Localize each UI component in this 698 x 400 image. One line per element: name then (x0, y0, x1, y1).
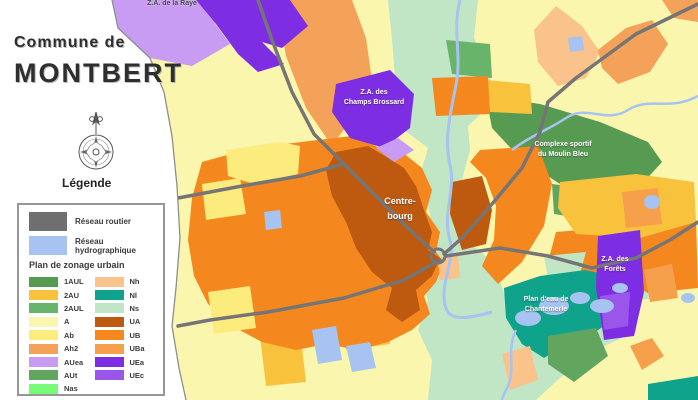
hydro-network-swatch (29, 236, 67, 255)
zone-swatch (29, 290, 58, 300)
pond (590, 299, 614, 313)
zone-swatch (29, 317, 58, 327)
zone-code: UA (130, 317, 141, 326)
legend-item-2au: 2AU (29, 288, 95, 301)
zone-code: AUea (64, 358, 83, 367)
zone-swatch (29, 357, 58, 367)
pond-north (568, 36, 584, 52)
zone-code: UEc (130, 371, 145, 380)
zone-legend-column-right: Nh Nl Ns UA UB (95, 275, 159, 396)
pond (644, 195, 660, 209)
zoning-map-page: Z.A. de la Raye Z.A. des Champs Brossard… (0, 0, 698, 400)
legend-item-roads: Réseau routier (29, 212, 158, 231)
road-network-swatch (29, 212, 67, 231)
zone-ub-north (432, 76, 490, 116)
legend-item-hydro: Réseau hydrographique (29, 236, 158, 255)
zone-swatch (95, 344, 124, 354)
zone-swatch (95, 330, 124, 340)
legend-item-ub: UB (95, 329, 159, 342)
zone-code: UB (130, 331, 141, 340)
zone-code: Ab (64, 331, 74, 340)
pond-town (264, 210, 282, 230)
legend-item-nl: Nl (95, 288, 159, 301)
pond (570, 292, 590, 304)
map-title-line2: MONTBERT (14, 58, 183, 89)
legend-item-ah2: Ah2 (29, 342, 95, 355)
zone-code: Nh (130, 277, 140, 286)
pond (539, 297, 569, 315)
legend-item-ab: Ab (29, 329, 95, 342)
zone-code: A (64, 317, 69, 326)
zone-2aul-north (446, 40, 492, 78)
zone-code: 2AUL (64, 304, 84, 313)
zone-swatch (95, 290, 124, 300)
compass-rose-icon (68, 110, 124, 178)
zone-code: Ah2 (64, 344, 78, 353)
zone-code: 1AUL (64, 277, 84, 286)
pond (612, 283, 628, 293)
legend-item-a: A (29, 315, 95, 328)
legend-item-aut: AUt (29, 369, 95, 382)
legend-item-ua: UA (95, 315, 159, 328)
zone-swatch (95, 277, 124, 287)
zone-code: UBa (130, 344, 145, 353)
pond (681, 293, 695, 303)
zone-swatch (95, 357, 124, 367)
map-title: Commune de MONTBERT (14, 34, 183, 89)
pond (515, 310, 541, 326)
map-title-line1: Commune de (14, 34, 183, 52)
legend-item-ns: Ns (95, 302, 159, 315)
zone-code: Nas (64, 384, 78, 393)
zone-swatch (29, 330, 58, 340)
zone-code: 2AU (64, 291, 79, 300)
legend-item-label: Réseau hydrographique (75, 237, 158, 255)
legend-item-uea: UEa (95, 355, 159, 368)
zone-ab-west (202, 178, 246, 220)
zoning-heading: Plan de zonage urbain (29, 260, 158, 270)
zone-swatch (29, 303, 58, 313)
zone-legend-column-left: 1AUL 2AU 2AUL A Ab (29, 275, 95, 396)
zone-swatch (29, 370, 58, 380)
zone-code: UEa (130, 358, 145, 367)
legend-item-2aul: 2AUL (29, 302, 95, 315)
zone-swatch (95, 370, 124, 380)
legend-item-nh: Nh (95, 275, 159, 288)
legend-item-auea: AUea (29, 355, 95, 368)
zone-swatch (95, 303, 124, 313)
zone-swatch (29, 277, 58, 287)
legend-item-label: Réseau routier (75, 217, 131, 226)
legend-item-uec: UEc (95, 369, 159, 382)
zone-ab-southwest (208, 286, 256, 334)
zone-2au-north (486, 80, 532, 114)
zone-code: Nl (130, 291, 138, 300)
zone-code: AUt (64, 371, 77, 380)
legend-box: Réseau routier Réseau hydrographique Pla… (17, 203, 165, 396)
zone-swatch (29, 384, 58, 394)
legend-item-uba: UBa (95, 342, 159, 355)
zone-swatch (29, 344, 58, 354)
zone-swatch (95, 317, 124, 327)
legend-heading: Légende (62, 176, 111, 190)
legend-item-1aul: 1AUL (29, 275, 95, 288)
legend-item-nas: Nas (29, 382, 95, 395)
zone-legend-grid: 1AUL 2AU 2AUL A Ab (29, 275, 158, 396)
zone-code: Ns (130, 304, 140, 313)
zone-uba-forets-east (644, 264, 678, 302)
